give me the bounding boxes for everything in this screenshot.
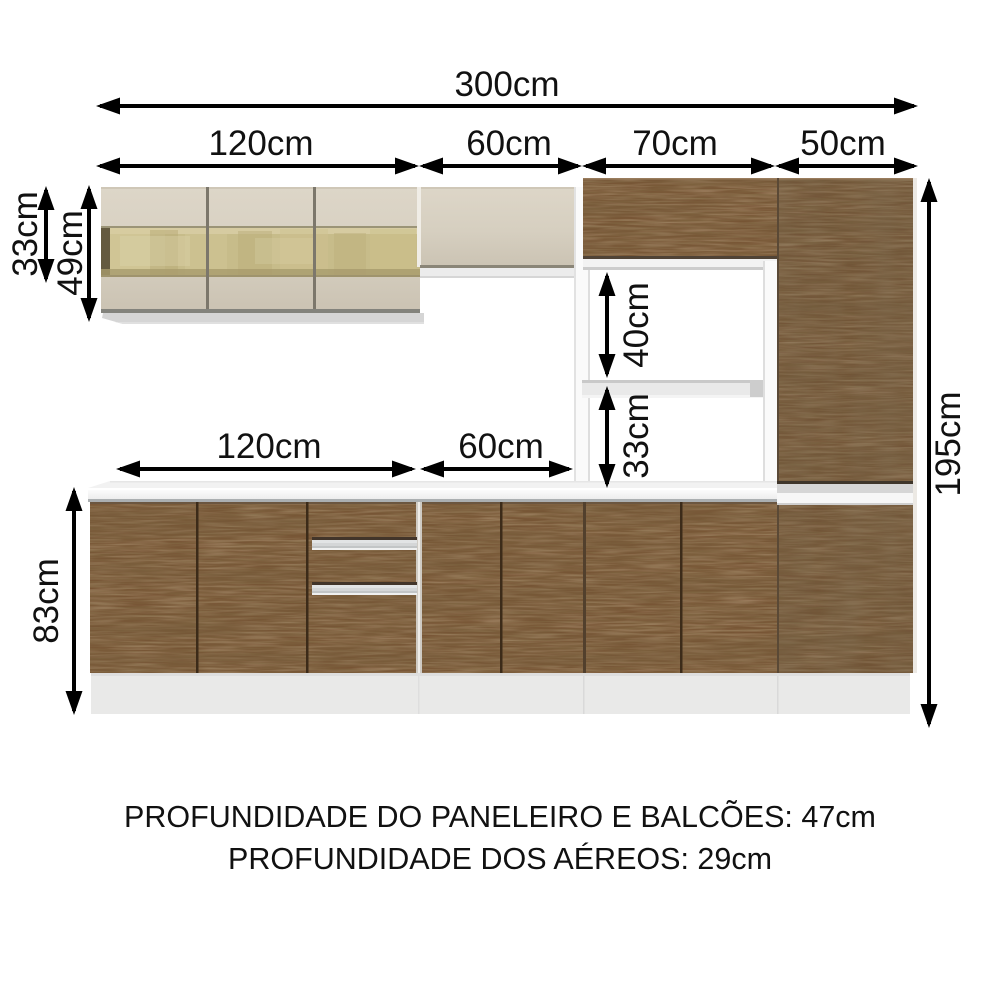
svg-text:33cm: 33cm	[6, 191, 45, 277]
svg-text:60cm: 60cm	[458, 427, 544, 466]
svg-text:120cm: 120cm	[208, 124, 313, 163]
svg-text:33cm: 33cm	[617, 393, 656, 479]
svg-text:60cm: 60cm	[466, 124, 552, 163]
svg-text:120cm: 120cm	[216, 427, 321, 466]
svg-text:195cm: 195cm	[929, 391, 968, 496]
svg-text:83cm: 83cm	[27, 558, 66, 644]
svg-text:PROFUNDIDADE DO PANELEIRO E BA: PROFUNDIDADE DO PANELEIRO E BALCÕES: 47c…	[124, 799, 876, 834]
svg-text:40cm: 40cm	[617, 282, 656, 368]
svg-text:70cm: 70cm	[632, 124, 718, 163]
svg-text:49cm: 49cm	[51, 210, 90, 296]
svg-text:PROFUNDIDADE DOS AÉREOS: 29cm: PROFUNDIDADE DOS AÉREOS: 29cm	[228, 841, 772, 876]
svg-text:50cm: 50cm	[800, 124, 886, 163]
svg-text:300cm: 300cm	[454, 65, 559, 104]
